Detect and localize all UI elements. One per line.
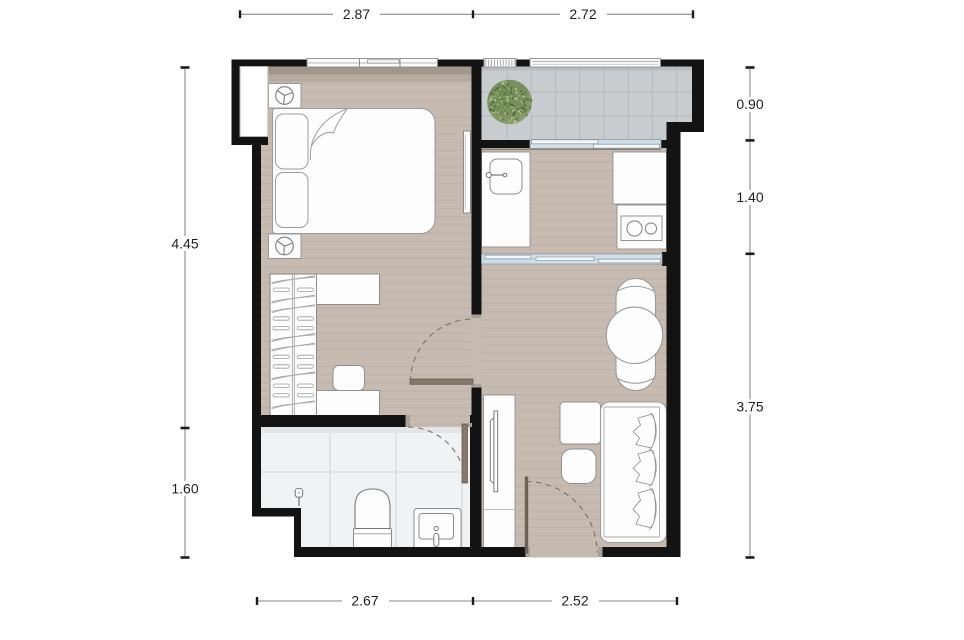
svg-text:4.45: 4.45 xyxy=(171,235,198,251)
svg-text:2.52: 2.52 xyxy=(561,593,588,609)
svg-text:2.72: 2.72 xyxy=(569,6,596,22)
svg-text:3.75: 3.75 xyxy=(736,399,763,415)
svg-text:1.60: 1.60 xyxy=(171,481,198,497)
svg-text:1.40: 1.40 xyxy=(736,189,763,205)
svg-text:2.87: 2.87 xyxy=(343,6,370,22)
svg-text:0.90: 0.90 xyxy=(736,96,763,112)
svg-text:2.67: 2.67 xyxy=(351,593,378,609)
